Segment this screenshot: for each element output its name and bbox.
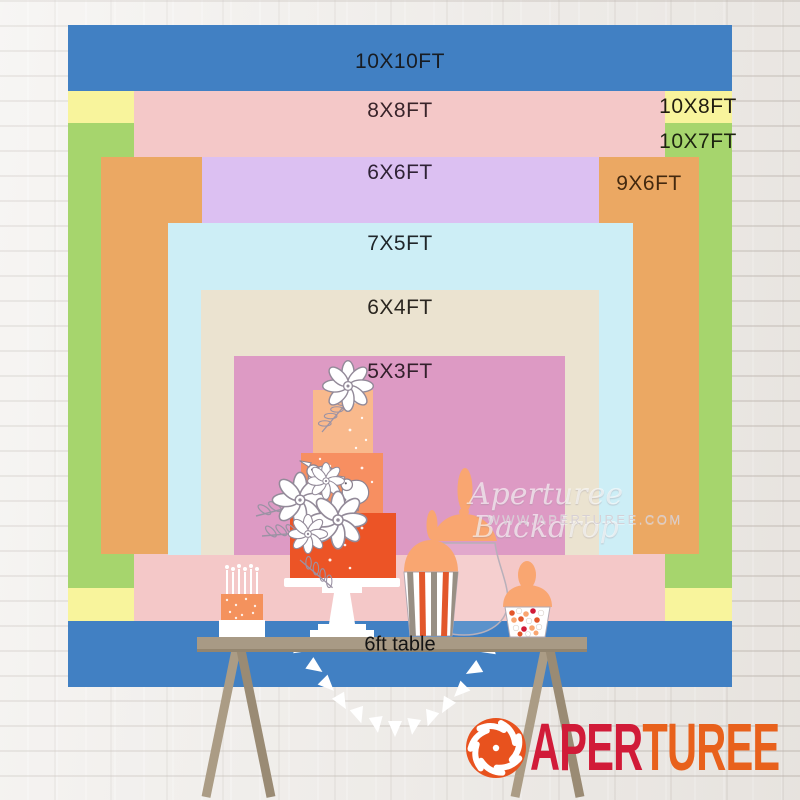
cake-stand (284, 578, 400, 637)
aperture-shutter-icon (464, 716, 528, 780)
table-size-label: 6ft table (364, 634, 435, 657)
logo-text-primary: APER (530, 711, 642, 785)
size-label-6x4ft: 6X4FT (367, 296, 433, 320)
size-label-5x3ft: 5X3FT (367, 360, 433, 384)
logo-text-secondary: TUREE (642, 711, 779, 785)
backdrop-size-chart: 10X10FT 8X8FT 10X8FT 10X7FT 6X6FT 9X6FT … (0, 0, 800, 800)
candle-cake (219, 564, 265, 637)
candy-jar (503, 561, 552, 637)
size-label-10x10ft: 10X10FT (355, 50, 445, 74)
size-label-6x6ft: 6X6FT (367, 161, 433, 185)
logo-wordmark: APERTUREE (530, 715, 779, 782)
size-label-7x5ft: 7X5FT (367, 232, 433, 256)
size-label-9x6ft: 9X6FT (616, 172, 682, 196)
size-label-8x8ft: 8X8FT (367, 99, 433, 123)
size-label-10x8ft: 10X8FT (659, 95, 737, 119)
size-label-10x7ft: 10X7FT (659, 130, 737, 154)
aperturee-logo: APERTUREE (464, 713, 800, 783)
